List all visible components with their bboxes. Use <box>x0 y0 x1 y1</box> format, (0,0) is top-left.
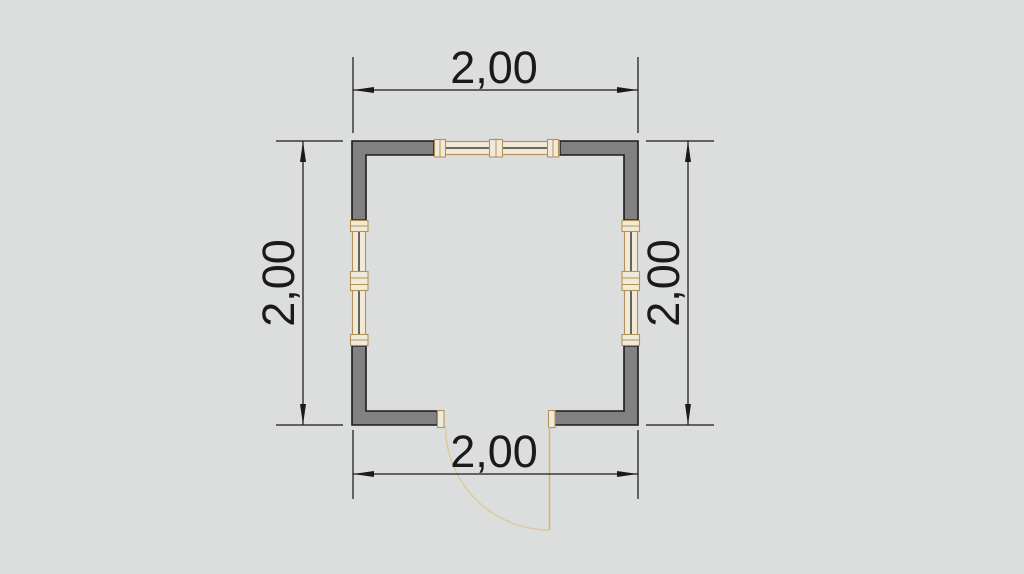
window-top <box>435 140 560 158</box>
window-left <box>351 221 369 346</box>
wall-corner-top-right <box>560 141 638 220</box>
dimension-bottom-arrow-left <box>353 471 374 477</box>
dimension-left: 2,00 <box>253 141 343 425</box>
wall-corner-top-left <box>352 141 434 220</box>
door-jamb-right <box>549 411 556 428</box>
dimension-right-arrow-top <box>685 141 691 162</box>
window-right-mullion <box>622 272 640 291</box>
wall-corner-bottom-left <box>352 346 438 425</box>
dimension-left-label: 2,00 <box>253 239 304 327</box>
window-right <box>622 221 640 346</box>
dimension-left-arrow-top <box>300 141 306 162</box>
dimension-top-label: 2,00 <box>450 42 538 93</box>
floor-plan-canvas: 2,00 2,00 2,00 2,00 <box>0 0 1024 574</box>
window-left-mullion <box>351 272 369 291</box>
dimension-right-arrow-bottom <box>685 404 691 425</box>
dimension-bottom-arrow-right <box>617 471 638 477</box>
dimension-right: 2,00 <box>638 141 714 425</box>
dimension-top-arrow-right <box>617 87 638 93</box>
door-jamb-left <box>438 411 445 428</box>
floor-plan-page: 2,00 2,00 2,00 2,00 <box>0 0 1024 574</box>
wall-corner-bottom-right <box>555 346 639 425</box>
walls <box>352 141 638 425</box>
dimension-right-label: 2,00 <box>638 239 689 327</box>
dimension-left-arrow-bottom <box>300 404 306 425</box>
dimension-top-arrow-left <box>353 87 374 93</box>
dimension-bottom: 2,00 <box>353 426 638 499</box>
dimension-top: 2,00 <box>353 42 638 133</box>
dimension-bottom-label: 2,00 <box>450 426 538 477</box>
